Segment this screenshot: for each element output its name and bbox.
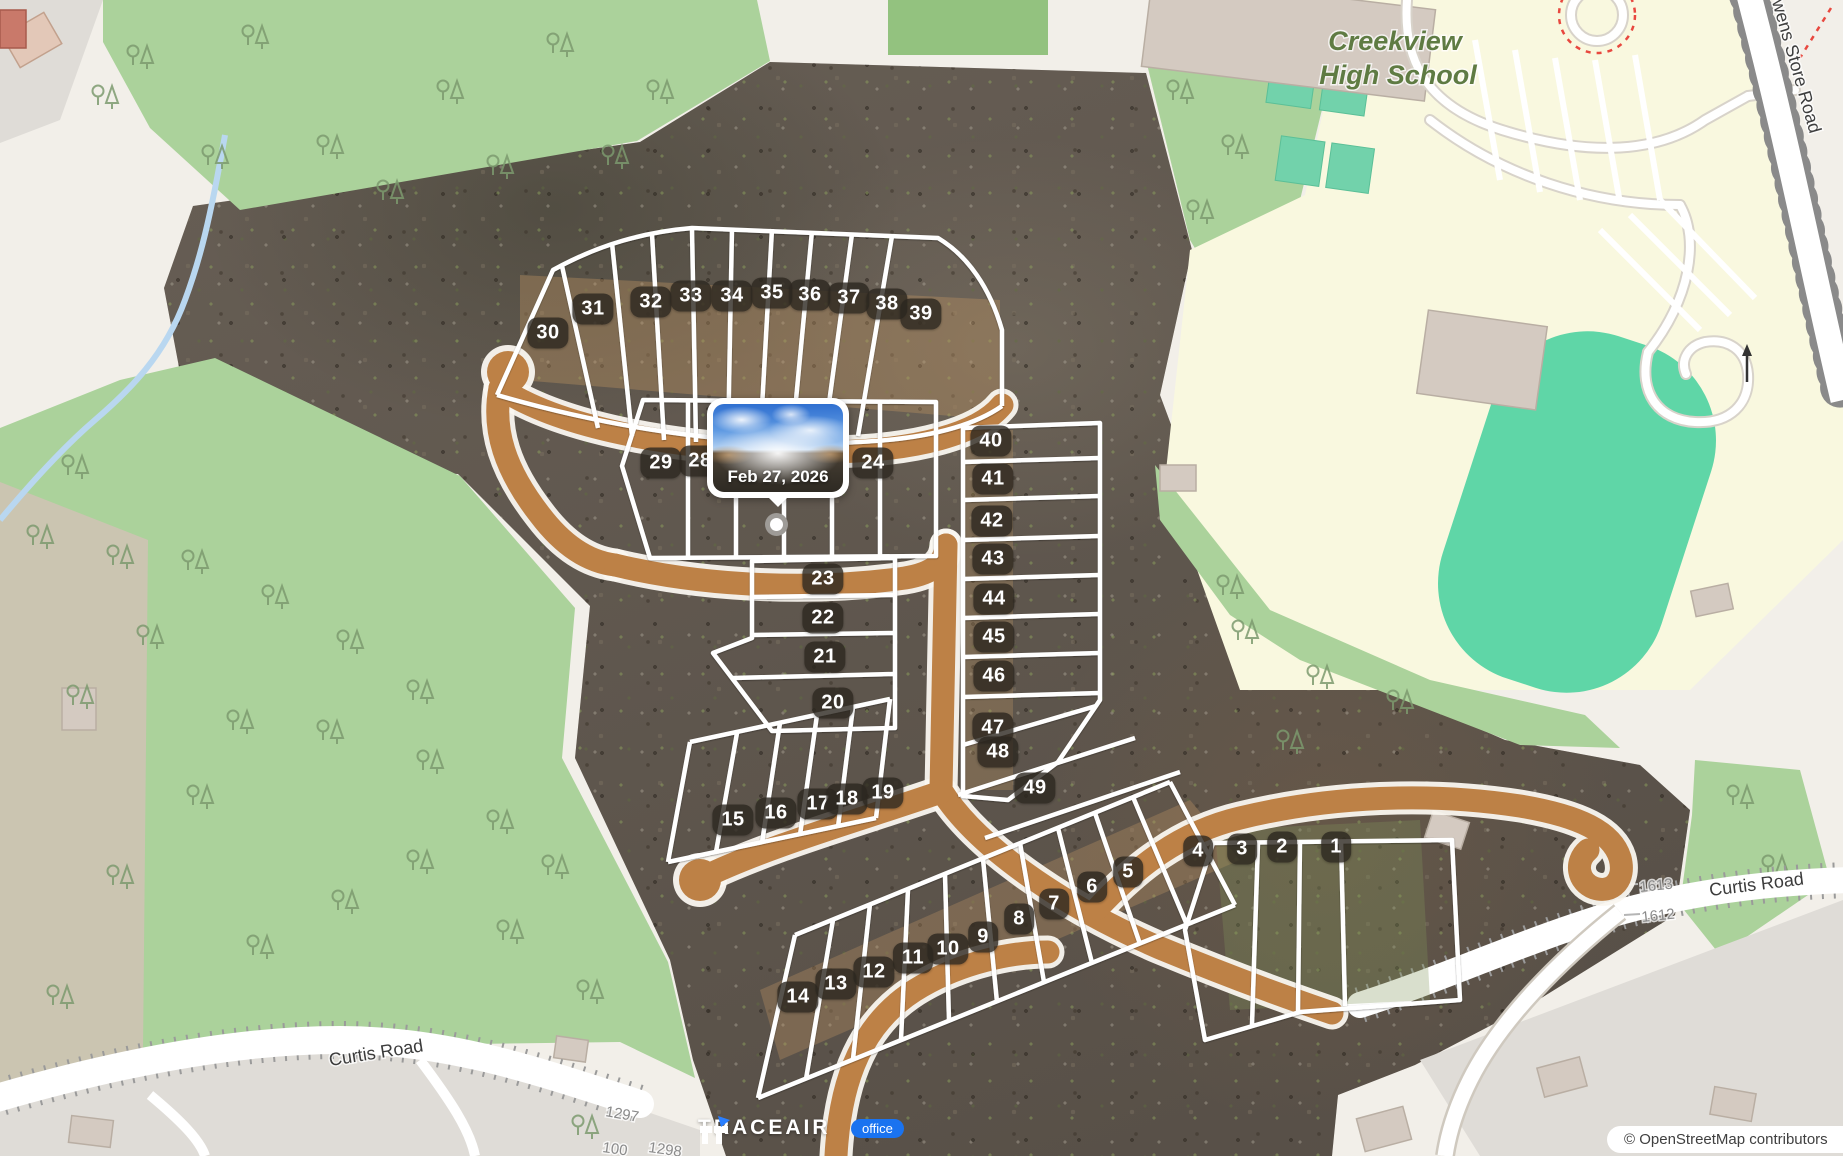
lot-42-marker[interactable]: 42 [971, 506, 1012, 537]
photo-location-marker[interactable] [765, 513, 788, 536]
lot-49-marker[interactable]: 49 [1014, 773, 1055, 804]
lot-31-marker[interactable]: 31 [572, 294, 613, 325]
lot-21-marker[interactable]: 21 [804, 642, 845, 673]
lot-14-marker[interactable]: 14 [777, 982, 818, 1013]
lot-15-marker[interactable]: 15 [712, 805, 753, 836]
lot-45-marker[interactable]: 45 [973, 622, 1014, 653]
lot-3-marker[interactable]: 3 [1227, 834, 1257, 865]
lot-11-marker[interactable]: 11 [893, 943, 933, 974]
lot-37-marker[interactable]: 37 [828, 283, 869, 314]
lot-8-marker[interactable]: 8 [1004, 904, 1034, 935]
lot-39-marker[interactable]: 39 [900, 299, 941, 330]
lot-23-marker[interactable]: 23 [802, 564, 843, 595]
lot-48-marker[interactable]: 48 [977, 737, 1018, 768]
lot-33-marker[interactable]: 33 [670, 281, 711, 312]
popup-pointer [768, 497, 788, 507]
lot-16-marker[interactable]: 16 [755, 798, 796, 829]
lot-36-marker[interactable]: 36 [789, 280, 830, 311]
lot-19-marker[interactable]: 19 [862, 778, 903, 809]
lot-10-marker[interactable]: 10 [927, 934, 968, 965]
lot-29-marker[interactable]: 29 [640, 448, 681, 479]
lot-5-marker[interactable]: 5 [1113, 857, 1143, 888]
flight-date-popup[interactable]: Feb 27, 2026 [707, 398, 849, 498]
osm-attribution-text[interactable]: © OpenStreetMap contributors [1624, 1131, 1828, 1148]
lot-12-marker[interactable]: 12 [853, 957, 894, 988]
lot-46-marker[interactable]: 46 [973, 661, 1014, 692]
map-viewport[interactable]: Creekview High School Owens Store Road C… [0, 0, 1843, 1156]
lot-1-marker[interactable]: 1 [1321, 832, 1351, 863]
lot-2-marker[interactable]: 2 [1267, 832, 1297, 863]
traceair-logo-icon [698, 1116, 730, 1146]
office-badge[interactable]: office [851, 1119, 904, 1138]
lot-22-marker[interactable]: 22 [802, 603, 843, 634]
lot-badge-layer: 1234567891011121314151617181920212223242… [0, 0, 1843, 1156]
lot-4-marker[interactable]: 4 [1183, 836, 1213, 867]
lot-41-marker[interactable]: 41 [972, 464, 1013, 495]
lot-32-marker[interactable]: 32 [630, 287, 671, 318]
lot-34-marker[interactable]: 34 [711, 281, 752, 312]
lot-6-marker[interactable]: 6 [1077, 872, 1107, 903]
lot-44-marker[interactable]: 44 [973, 584, 1014, 615]
flight-date-label: Feb 27, 2026 [713, 467, 843, 487]
lot-30-marker[interactable]: 30 [527, 318, 568, 349]
lot-24-marker[interactable]: 24 [852, 448, 893, 479]
flight-thumbnail[interactable]: Feb 27, 2026 [713, 404, 843, 492]
lot-7-marker[interactable]: 7 [1039, 889, 1069, 920]
traceair-logo: TRACEAIR [698, 1116, 831, 1140]
lot-35-marker[interactable]: 35 [751, 278, 792, 309]
lot-9-marker[interactable]: 9 [968, 922, 998, 953]
lot-20-marker[interactable]: 20 [812, 688, 853, 719]
lot-13-marker[interactable]: 13 [815, 969, 856, 1000]
lot-43-marker[interactable]: 43 [972, 544, 1013, 575]
lot-40-marker[interactable]: 40 [970, 426, 1011, 457]
osm-attribution[interactable]: © OpenStreetMap contributors [1607, 1126, 1843, 1153]
